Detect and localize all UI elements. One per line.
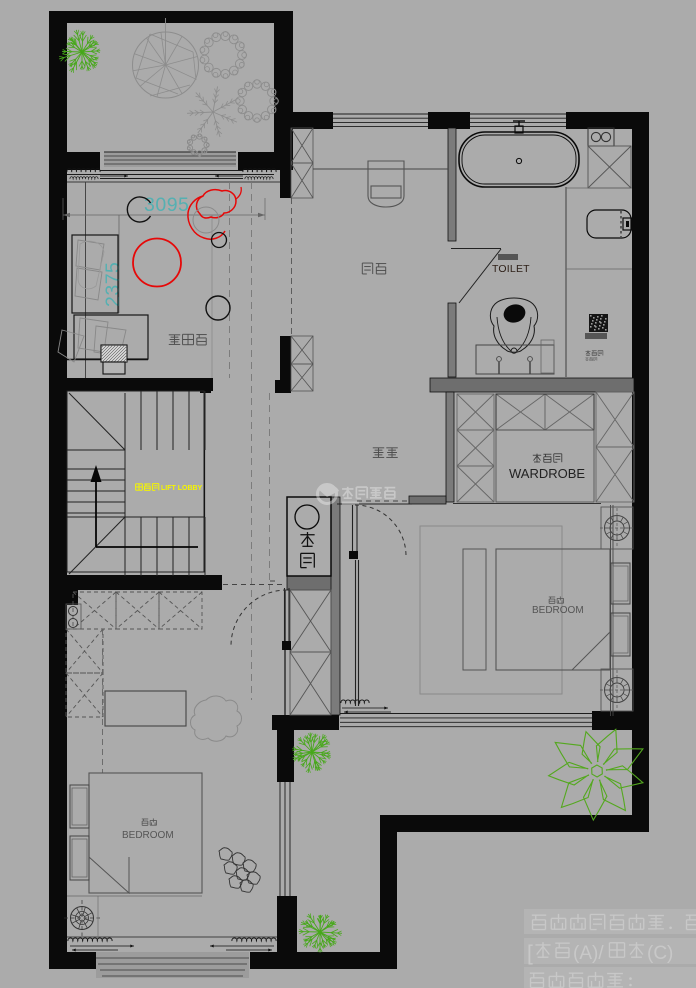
svg-text:2375: 2375 — [102, 262, 124, 307]
svg-text:(C): (C) — [647, 943, 673, 964]
svg-text:LIFT LOBBY: LIFT LOBBY — [161, 485, 203, 492]
svg-text:(A)/: (A)/ — [573, 943, 604, 964]
svg-text:BEDROOM: BEDROOM — [532, 605, 584, 616]
svg-text:TOILET: TOILET — [492, 263, 530, 275]
svg-text:BEDROOM: BEDROOM — [122, 830, 174, 841]
svg-text:WARDROBE: WARDROBE — [509, 466, 585, 481]
svg-text:3095: 3095 — [144, 194, 189, 216]
svg-text:[: [ — [527, 942, 533, 965]
